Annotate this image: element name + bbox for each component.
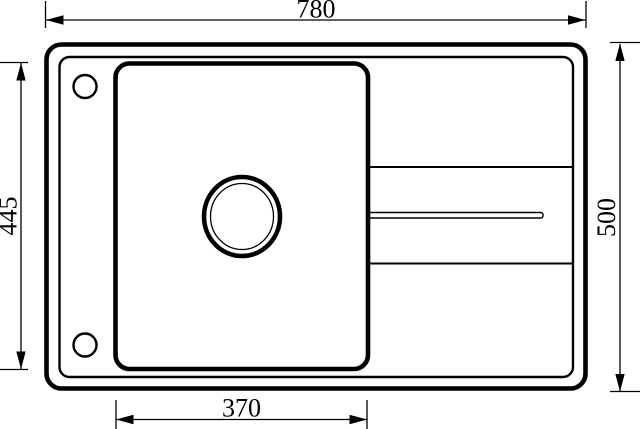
faucet-hole-bottom [74,334,97,357]
dim-label-bowl-width: 370 [222,394,261,423]
technical-drawing: 780 500 445 [0,0,640,429]
drainboard-groove [366,213,543,219]
sink-body [47,45,586,389]
drain-outer-ring [204,177,280,256]
dim-label-bowl-depth: 445 [0,197,23,236]
faucet-hole-top [74,75,97,98]
dim-label-overall-width: 780 [297,0,336,24]
dim-label-overall-depth: 500 [592,198,621,237]
sink-drawing-canvas: 780 500 445 [0,0,640,429]
